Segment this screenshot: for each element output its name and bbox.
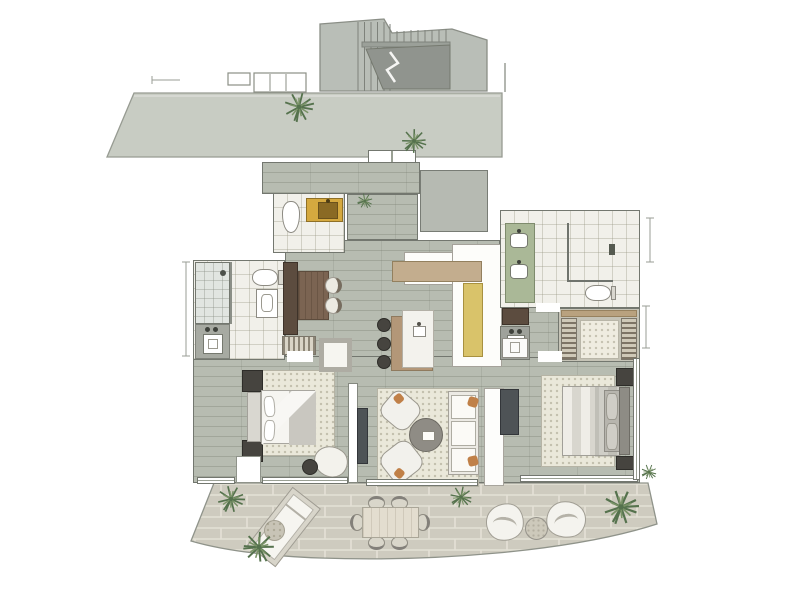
bathroom2-wall-basin <box>256 289 278 318</box>
master-side-window <box>633 358 640 480</box>
accent-pillow <box>392 392 405 405</box>
dining-chair <box>325 297 342 314</box>
master-window <box>520 475 638 482</box>
living-coffee-table <box>409 418 443 452</box>
floor-entry-top <box>262 162 420 194</box>
bedroom2-terrace-door <box>236 456 261 483</box>
dresser-detail <box>510 342 520 353</box>
basin-bowl <box>261 294 273 312</box>
faucet-dot <box>517 329 522 334</box>
master-sink <box>510 264 528 279</box>
master-toilet <box>585 285 611 301</box>
master-sink <box>510 233 528 248</box>
shower-head-icon <box>220 270 226 276</box>
kitchen-counter-bar <box>392 261 482 282</box>
bathroom-2 <box>193 260 285 360</box>
chair-seat-line <box>492 515 518 534</box>
bathroom2-toilet <box>252 269 278 286</box>
bathroom2-sink <box>203 334 223 354</box>
shower-glass-panel <box>567 280 613 282</box>
hall-cabinet <box>502 308 529 325</box>
walkway-landing-small <box>228 73 250 85</box>
accent-pillow <box>467 455 479 467</box>
faucet-dot <box>509 329 514 334</box>
living-sliding-door <box>366 479 478 486</box>
powder-vanity <box>306 198 343 222</box>
kitchen-yellow-counter <box>463 283 483 357</box>
terrace-side-table <box>525 517 548 540</box>
bedroom2-nightstand <box>242 370 263 392</box>
kitchen-stool <box>377 337 391 351</box>
walk-in-closet <box>558 308 640 362</box>
powder-room <box>273 193 345 253</box>
faucet-dot <box>517 229 521 233</box>
master-bathroom <box>500 210 640 308</box>
terrace-side-table <box>264 520 285 541</box>
floor-plan-canvas <box>0 0 800 600</box>
bed-pillow <box>606 393 618 420</box>
powder-sink <box>318 202 338 219</box>
powder-toilet <box>282 201 300 233</box>
sink-basin <box>208 339 218 349</box>
dining-table <box>298 271 329 320</box>
closet-shelf <box>561 310 637 317</box>
master-headboard <box>619 387 630 455</box>
closet-rug <box>580 320 619 359</box>
faucet-dot <box>517 260 521 264</box>
bedroom2-bed <box>261 390 315 444</box>
bedroom2-side-table <box>302 459 318 475</box>
master-dresser <box>502 338 528 358</box>
kitchen-stool <box>377 318 391 332</box>
closet-hanging-rack <box>561 318 577 360</box>
entry-door-step <box>368 150 416 163</box>
shower-glass-panel <box>567 223 569 280</box>
bathroom2-partition-wall <box>230 262 232 324</box>
island-sink <box>413 326 426 337</box>
bathroom2-vanity <box>195 324 230 359</box>
upper-walkway <box>107 93 502 157</box>
bed-pillow <box>263 396 276 418</box>
storage-room <box>420 170 488 232</box>
bedroom2-window <box>262 477 348 484</box>
living-tv-console <box>357 408 368 464</box>
kitchen-stool <box>377 355 391 369</box>
powder-faucet <box>326 199 330 203</box>
shower-control <box>609 244 615 255</box>
bedroom2-window <box>197 477 235 484</box>
faucet-dot <box>213 327 218 332</box>
closet-hanging-rack <box>621 318 637 360</box>
master-tv-console <box>500 389 519 435</box>
master-double-vanity <box>505 223 535 303</box>
coffee-table-tray <box>422 431 435 441</box>
faucet-dot <box>205 327 210 332</box>
bedroom2-door-opening <box>287 351 313 362</box>
accent-pillow <box>393 467 406 480</box>
master-bed-pillow-zone <box>604 390 620 452</box>
dining-chair <box>325 277 342 294</box>
bathroom2-shower <box>195 262 230 324</box>
terrace-dining-table <box>362 507 419 538</box>
walkway-landing-steps <box>254 73 306 92</box>
master-door-opening <box>538 351 562 362</box>
terrace-chair <box>391 536 408 550</box>
kitchen-island-top <box>402 310 434 368</box>
sofa-cushion <box>451 421 476 446</box>
master-toilet-tank <box>611 286 616 300</box>
chair-seat-line <box>553 512 579 532</box>
bed-pillow <box>263 420 275 442</box>
living-sofa <box>448 391 479 475</box>
bed-pillow <box>606 423 618 450</box>
bedroom2-headboard <box>247 392 261 442</box>
island-faucet <box>417 322 421 326</box>
dining-tall-cabinet <box>283 262 298 335</box>
master-bath-door-opening <box>536 303 560 312</box>
hall-white-cabinet <box>319 338 352 372</box>
terrace-chair <box>368 536 385 550</box>
floor-entry-hall <box>347 194 418 240</box>
